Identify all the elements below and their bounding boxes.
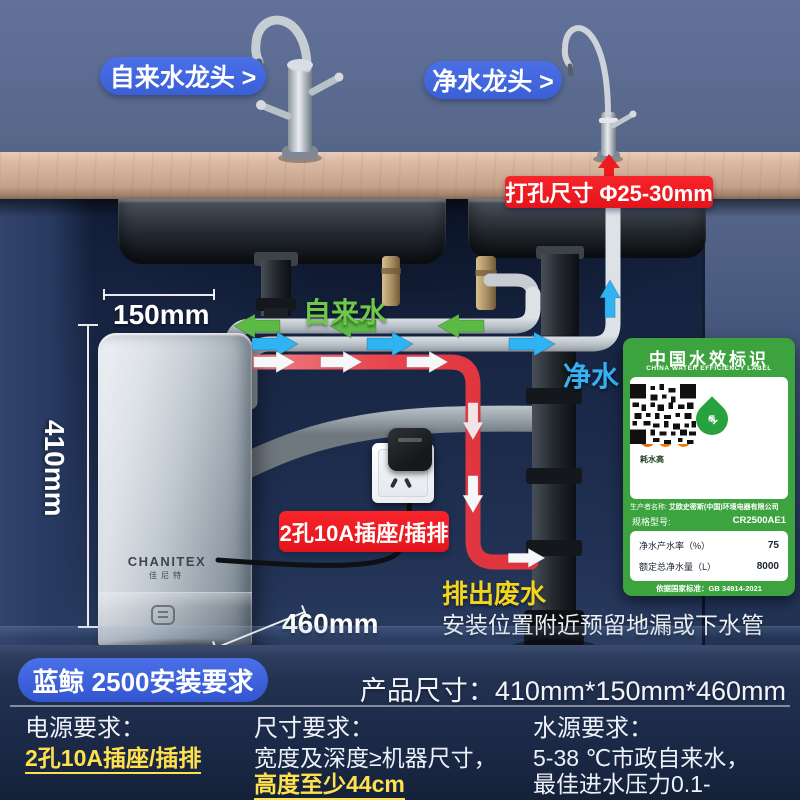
water-efficiency-label: 中国水效标识 CHINA WATER EFFICIENCY LABEL 耗水低 …	[623, 338, 795, 596]
pure-faucet-callout: 净水龙头 >	[424, 61, 562, 99]
installation-infographic: CHANITEX 佳尼特	[0, 0, 800, 800]
water-requirement-column: 水源要求： 5-38 ℃市政自来水， 最佳进水压力0.1-0.35MPa	[533, 716, 800, 800]
power-requirement-value: 2孔10A插座/插排	[25, 745, 201, 774]
product-size: 产品尺寸：410mm*150mm*460mm	[360, 669, 786, 708]
floor-edge	[0, 626, 800, 652]
width-dimension: 150mm	[113, 299, 210, 331]
efficiency-grade-panel: 耗水低 1 2 3 耗水高 1级	[630, 377, 788, 499]
socket-callout: 2孔10A插座/插排	[279, 511, 449, 552]
power-requirement-column: 电源要求： 2孔10A插座/插排	[25, 716, 201, 774]
power-adapter-plug	[388, 428, 432, 471]
efficiency-subtitle: CHINA WATER EFFICIENCY LABEL	[623, 365, 795, 372]
high-consumption-label: 耗水高	[640, 454, 664, 465]
height-requirement-value: 高度至少44cm	[254, 771, 405, 800]
hole-size-callout: 打孔尺寸 Φ25-30mm	[505, 176, 713, 208]
footer-divider	[10, 705, 790, 707]
tap-water-flow-label: 自来水	[303, 291, 387, 331]
grade-badge-drop-icon: 1级	[689, 396, 734, 441]
size-requirement-column: 尺寸要求： 宽度及深度≥机器尺寸， 高度至少44cm	[254, 716, 497, 800]
footer-title-pill: 蓝鲸 2500安装要求	[18, 658, 268, 702]
hole-size-arrow-icon	[598, 154, 620, 168]
qr-code	[630, 384, 696, 444]
model-number: CR2500AE1	[733, 515, 786, 528]
efficiency-row: 额定总净水量（L）8000	[639, 560, 779, 573]
width-dimension-line	[103, 294, 215, 296]
height-dimension: 410mm	[38, 420, 70, 550]
producer-row: 生产者名称: 艾欧史密斯(中国)环境电器有限公司	[630, 502, 788, 512]
height-dimension-line	[87, 325, 89, 628]
efficiency-values-panel: 净水产水率（%）75 额定总净水量（L）8000	[630, 531, 788, 581]
pure-water-flow-label: 净水	[563, 355, 619, 395]
tap-faucet-callout: 自来水龙头 >	[100, 57, 266, 95]
efficiency-row: 净水产水率（%）75	[639, 539, 779, 552]
plug-logo	[398, 438, 422, 442]
national-standard: 依据国家标准：GB 34914-2021	[623, 583, 795, 594]
model-row: 规格型号: CR2500AE1	[630, 515, 788, 528]
producer-name: 艾欧史密斯(中国)环境电器有限公司	[669, 504, 779, 511]
